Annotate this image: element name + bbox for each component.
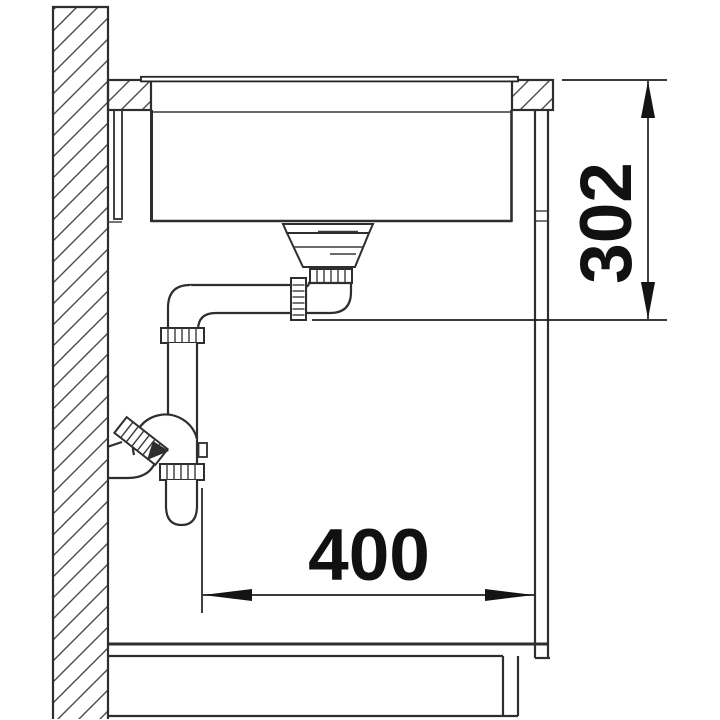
arrow-up-icon (641, 81, 655, 118)
strainer-lock-nut (310, 269, 352, 283)
arrow-down-icon (641, 282, 655, 319)
sink-basin (151, 110, 512, 222)
trap-cup (166, 480, 197, 525)
trap-inlet-nut (161, 328, 204, 343)
technical-drawing-canvas: 302 400 (0, 0, 720, 720)
drain-strainer (283, 224, 373, 283)
wall-section (53, 7, 108, 719)
dimension-302: 302 (312, 80, 667, 320)
dimension-302-label: 302 (566, 162, 647, 284)
sink-rim (141, 77, 518, 82)
countertop-left-block (108, 80, 151, 110)
cabinet-back-rail (107, 110, 122, 222)
cabinet-bottom-shelf (108, 644, 548, 656)
arrow-right-icon (485, 589, 534, 601)
pipe-coupling-nut (291, 278, 306, 320)
arrow-left-icon (203, 589, 252, 601)
countertop-right-block (512, 80, 553, 110)
trap-side-tab (199, 443, 208, 457)
dimension-400: 400 (202, 488, 534, 613)
cabinet-side-panel (535, 110, 550, 658)
dimension-400-label: 400 (308, 515, 430, 596)
trap-union-nut (160, 464, 204, 480)
plinth-leg (108, 656, 518, 716)
sink-section-drawing: 302 400 (0, 0, 720, 720)
trap-vertical-pipe (168, 343, 197, 468)
drain-tailpiece-elbow (306, 283, 351, 313)
